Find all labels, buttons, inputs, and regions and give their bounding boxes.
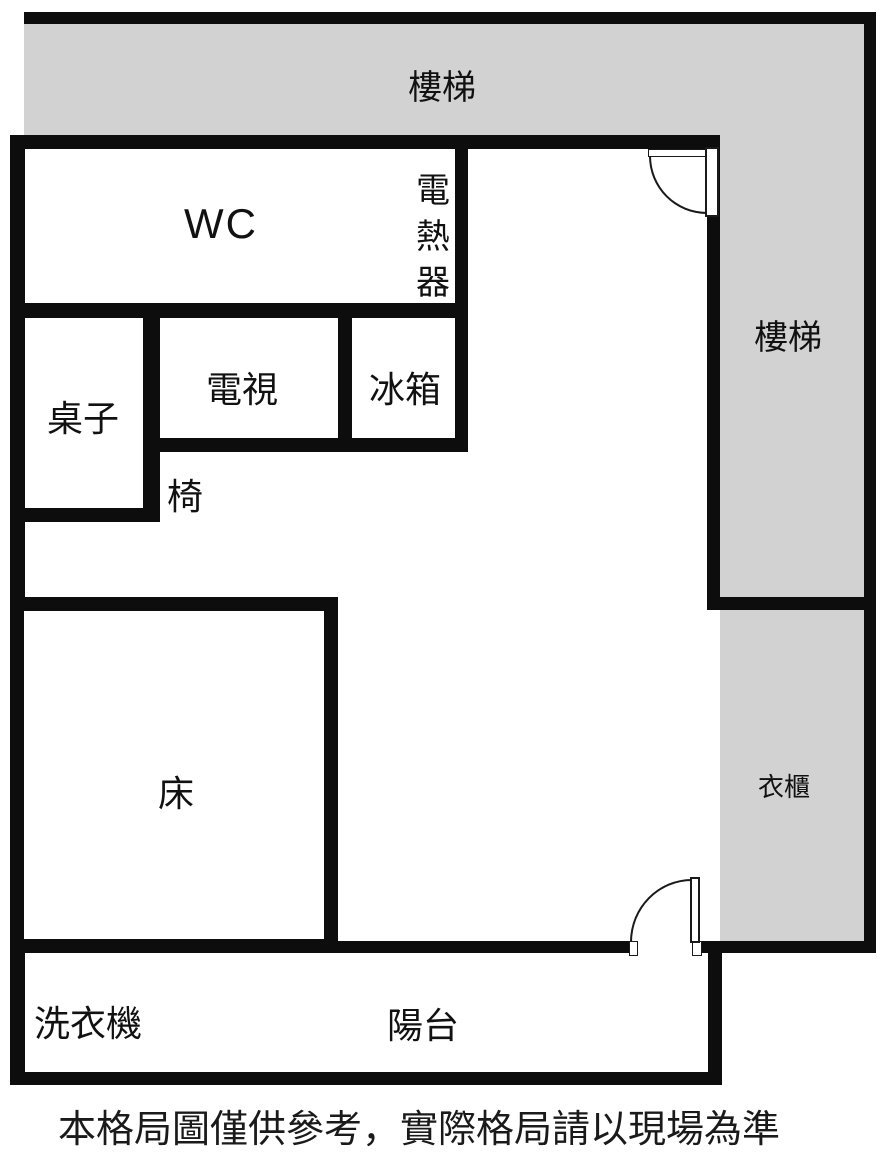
tv-label: 電視: [206, 370, 278, 410]
tv-fridge-divider: [338, 303, 352, 452]
wall-balcony-right: [708, 953, 722, 1085]
wall-wc-bottom: [10, 303, 468, 318]
stairs-top-label: 樓梯: [408, 70, 476, 107]
water-heater-label: 電熱器: [416, 168, 454, 306]
balcony-door-swing-arc: [630, 879, 692, 942]
disclaimer-text: 本格局圖僅供參考，實際格局請以現場為準: [0, 1110, 838, 1152]
wall-outer-top: [24, 12, 876, 24]
wc-label: WC: [184, 201, 258, 247]
balcony-door-jamb-left: [629, 941, 638, 956]
entry-door-leaf: [705, 147, 719, 217]
chair-label: 椅: [167, 477, 203, 517]
floor-plan: 樓梯 樓梯 WC 電熱器 桌子 電視 冰箱 椅 床 衣櫃 洗衣機 陽台 本格局圖…: [0, 0, 889, 1173]
tv-fridge-outline-bottom: [160, 438, 468, 452]
wardrobe-label: 衣櫃: [758, 773, 810, 802]
desk-outline-right: [143, 303, 160, 522]
bed-label: 床: [158, 774, 194, 814]
fridge-label: 冰箱: [369, 370, 441, 410]
balcony-door-jamb-right: [692, 941, 702, 956]
stairs-right-label: 樓梯: [754, 320, 822, 357]
wall-stairs-wardrobe-divider: [707, 597, 876, 610]
wall-stairs-column-left: [707, 149, 720, 610]
desk-label: 桌子: [47, 399, 119, 439]
washing-machine-label: 洗衣機: [34, 1004, 142, 1044]
wall-room-bottom-right-segment: [702, 941, 876, 953]
wall-wc-right: [455, 149, 468, 452]
wall-room-top: [10, 135, 720, 149]
stairs-area-right: [718, 135, 864, 598]
balcony-label: 陽台: [387, 1006, 459, 1046]
wall-outer-right: [864, 12, 876, 953]
entry-door-swing-arc: [649, 156, 707, 214]
balcony-door-leaf: [690, 877, 700, 943]
desk-outline-bottom: [10, 508, 160, 522]
wall-balcony-bottom: [10, 1072, 722, 1085]
